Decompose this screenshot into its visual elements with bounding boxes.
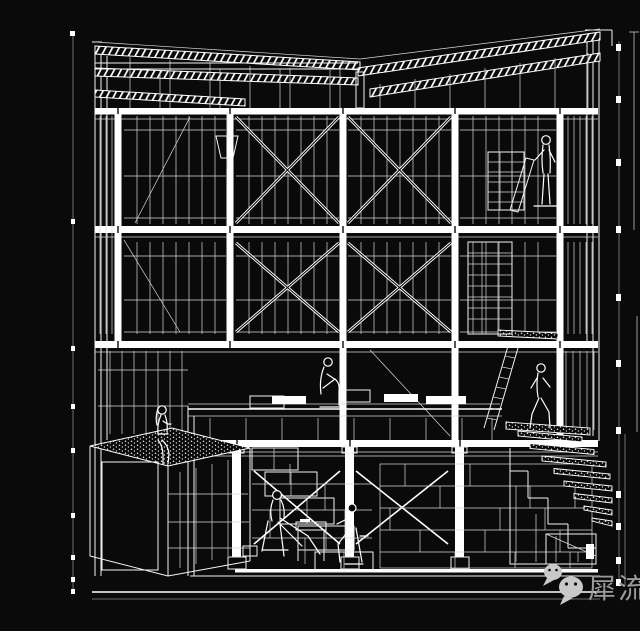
section-drawing-figure: 犀流剪报 xyxy=(40,16,640,615)
section-drawing: 犀流剪报 xyxy=(40,16,640,615)
watermark-text: 犀流剪报 xyxy=(588,572,640,605)
